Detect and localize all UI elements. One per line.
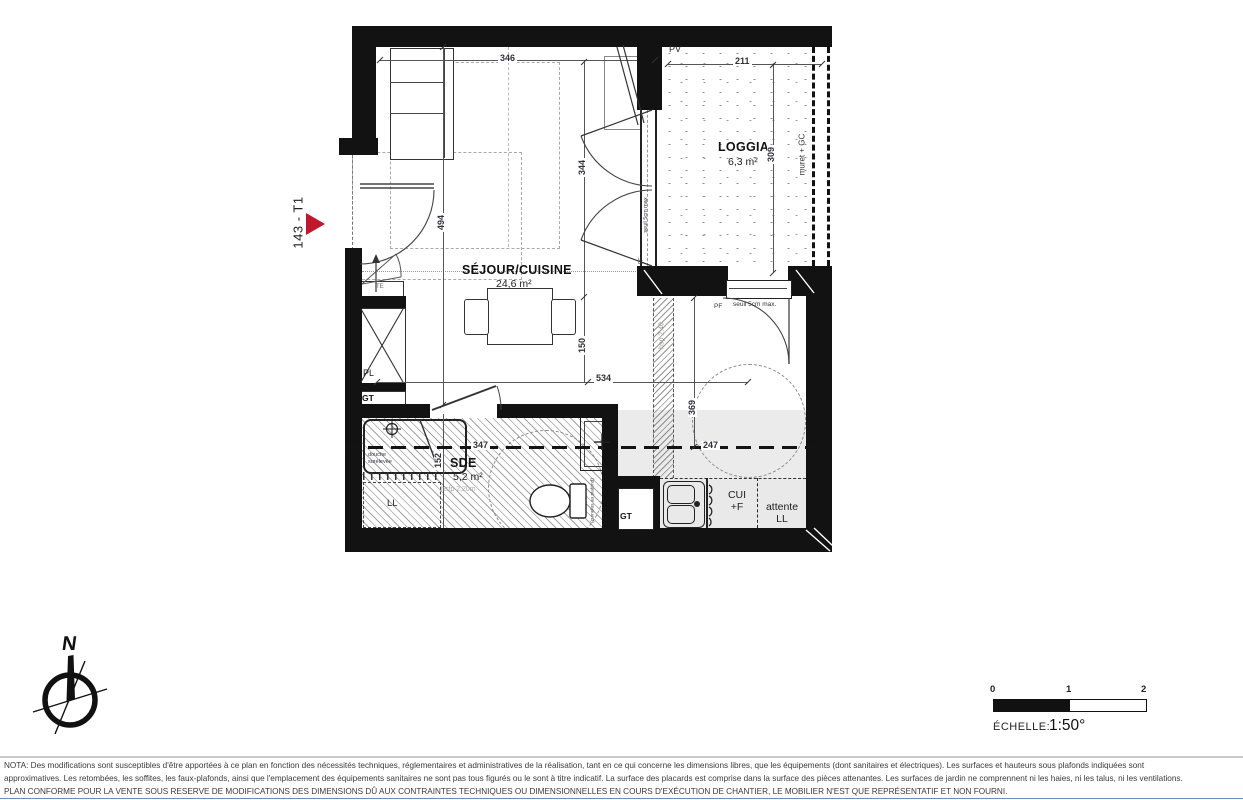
wall-sde-right (602, 418, 618, 528)
scale-caption: ÉCHELLE: (993, 721, 1050, 733)
loggia-name: LOGGIA (718, 140, 769, 154)
window-sill-line (729, 288, 787, 289)
washer-ll-box (363, 482, 441, 528)
wall-entry-spacer2 (360, 383, 406, 391)
cui-line2: +F (722, 501, 752, 513)
sink-bowl-bottom (667, 505, 695, 524)
seuil-door-label: seuil 5cm max. (733, 301, 776, 308)
kitchen-divider-solid (706, 478, 708, 528)
loggia-area: 6,3 m² (728, 156, 758, 168)
dimline-369 (694, 298, 695, 447)
muret-label: muret + GC (798, 127, 807, 183)
te-label: TE (376, 284, 384, 290)
sde-area: 5,2 m² (453, 471, 483, 483)
wall-sde-top-a (345, 404, 430, 418)
wall-divider-top (637, 26, 662, 110)
wall-left-upper (352, 26, 376, 140)
window-glazing-dash (647, 110, 648, 266)
dimline-152 (443, 414, 444, 528)
wall-loggia-bottom-left (637, 266, 728, 296)
sejour-name: SÉJOUR/CUISINE (462, 263, 572, 277)
entry-opening-dash (352, 155, 353, 250)
wall-entry-spacer1 (360, 296, 406, 308)
footer-bottom-rule (0, 798, 1243, 800)
ceiling-dashed-vline (508, 47, 509, 247)
dim-152: 152 (434, 451, 443, 470)
dining-table (487, 288, 553, 345)
scale-ratio: 1:50° (1049, 717, 1085, 735)
sejour-area: 24,6 m² (496, 278, 532, 290)
dim-369: 369 (688, 398, 697, 417)
sde-name: SDE (450, 456, 477, 470)
sofa-line-v (444, 48, 445, 158)
seuil-window-label: seuil 5cm max (643, 189, 649, 241)
wall-sde-top-b (497, 404, 618, 418)
dim-309: 309 (767, 145, 776, 164)
wall-left-notch (339, 138, 378, 155)
section-cut-line (345, 446, 832, 449)
footer-line-2: approximatives. Les retombées, les soffi… (4, 774, 1238, 783)
scale-bar-fill (994, 700, 1070, 711)
attente-label: attente LL (760, 501, 804, 525)
unit-marker-triangle (306, 213, 325, 235)
floor-plan-sheet: 143 - T1 SÉJOUR/CUISINE 24,6 m² LOGGIA 6… (0, 0, 1243, 800)
dimline-346 (380, 60, 655, 61)
footer-divider (0, 756, 1243, 758)
duct-gt-box (618, 488, 654, 530)
ll-label: LL (387, 498, 398, 509)
chair-left (464, 299, 489, 335)
dim-211: 211 (733, 57, 752, 66)
cui-line1: CUI (722, 489, 752, 501)
pf-door-label: PF (714, 303, 722, 310)
plan-id: 143 - T1 (291, 183, 306, 263)
attente-line2: LL (760, 513, 804, 525)
dim-344: 344 (578, 158, 587, 177)
pf-window-label: PF (639, 257, 645, 264)
sofa-line-h1 (390, 82, 445, 83)
dim-247: 247 (701, 441, 720, 450)
cui-label: CUI +F (722, 489, 752, 513)
cumulus-label: (cumulus au plafond) (591, 470, 596, 532)
dim-347: 347 (471, 441, 490, 450)
muret-dashed (812, 47, 830, 266)
gt-duct-label: GT (620, 511, 632, 521)
sde-hsfp: hsfp 2,20m (441, 486, 476, 493)
dimline-534 (377, 382, 748, 383)
wall-right (806, 266, 832, 528)
dim-534: 534 (594, 374, 613, 383)
window-loggia-bottom (726, 280, 792, 299)
footer-line-1: NOTA: Des modifications sont susceptible… (4, 761, 1238, 770)
chair-right (551, 299, 576, 335)
wall-top (375, 26, 832, 47)
scale-bar (993, 699, 1147, 712)
scale-tick-2: 2 (1141, 684, 1146, 695)
kitchen-divider-dashed (757, 478, 758, 528)
pl-label: PL (363, 368, 374, 378)
window-sejour-loggia (640, 110, 657, 266)
dim-346: 346 (498, 54, 517, 63)
sink-faucet (694, 501, 700, 507)
pv-label: PV (669, 44, 681, 54)
attente-line1: attente (760, 501, 804, 513)
compass-icon (33, 655, 107, 734)
scale-tick-0: 0 (990, 684, 995, 695)
douche-label-1: douche (368, 452, 386, 458)
wall-loggia-bottom-right (788, 266, 832, 296)
gt-entry-label: GT (362, 393, 374, 403)
hsp-label: hsp 2,40 (659, 314, 666, 358)
shower-step (363, 472, 439, 480)
dim-494: 494 (437, 213, 446, 232)
dimline-344-150 (584, 62, 585, 382)
sink-bowl-top (667, 485, 695, 504)
dimline-309 (773, 65, 774, 273)
kitchen-sink-unit (663, 481, 705, 528)
sofa-line-h2 (390, 113, 445, 114)
wall-bottom (345, 528, 832, 552)
footer-line-3: PLAN CONFORME POUR LA VENTE SOUS RESERVE… (4, 787, 1238, 796)
compass-north-label: N (60, 633, 78, 656)
scale-tick-1: 1 (1066, 684, 1071, 695)
dim-150: 150 (578, 336, 587, 355)
douche-label-2: surélevée (368, 459, 392, 465)
